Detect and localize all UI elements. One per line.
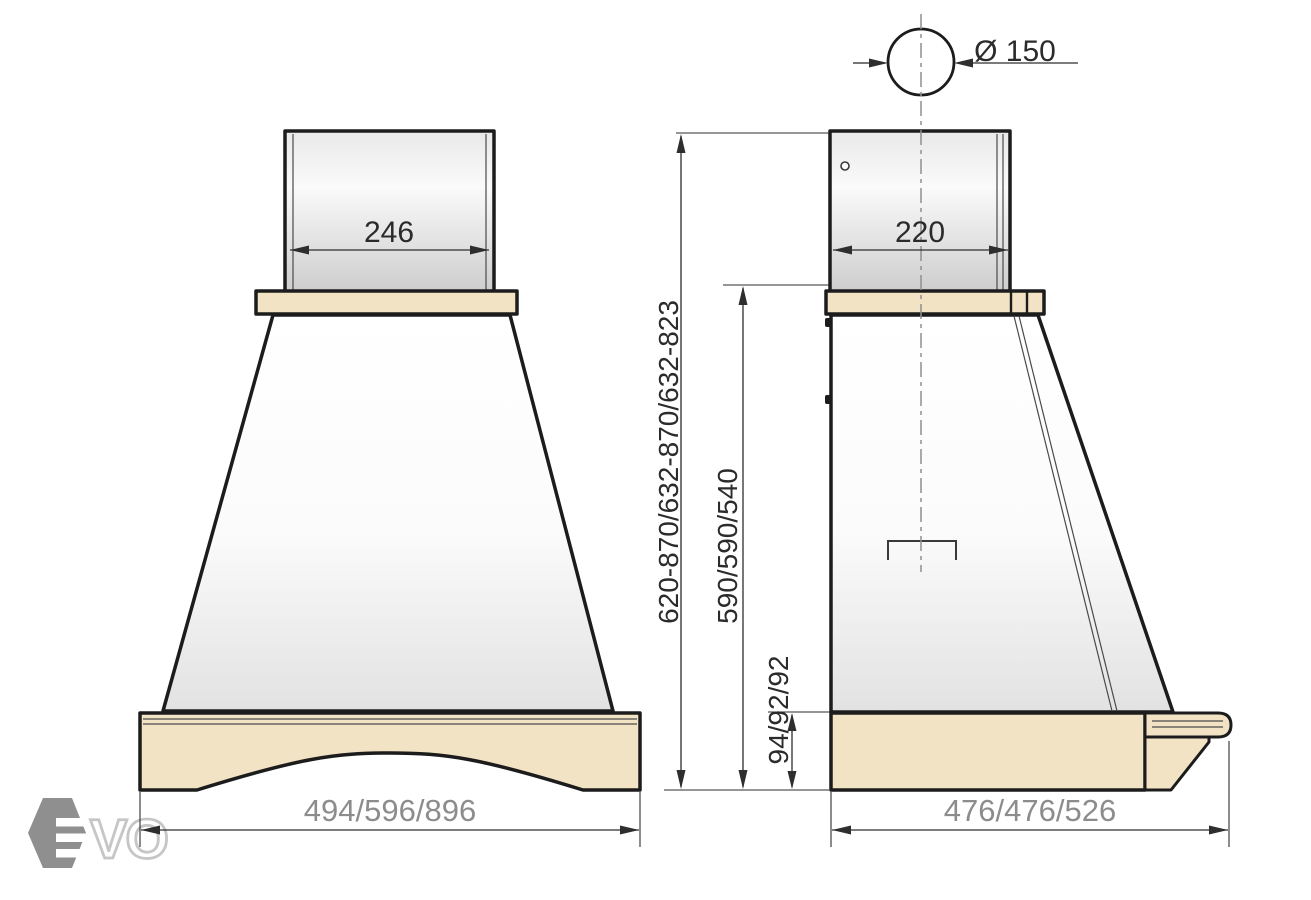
side-base-dim-arrow — [1209, 826, 1228, 835]
side-base-depth-label: 476/476/526 — [944, 793, 1116, 828]
front-base-dim-arrow — [620, 826, 639, 835]
duct-dim-arrow — [954, 59, 973, 68]
wall-mount-bump — [825, 318, 831, 327]
side-chimney — [830, 131, 1010, 292]
front-chimney-width-label: 246 — [364, 216, 414, 249]
side-base-band — [831, 713, 1145, 790]
side-base-front-block — [1145, 737, 1209, 790]
duct-dim-arrow — [869, 59, 888, 68]
overall-height-arrow — [677, 770, 686, 789]
front-base-width-label: 494/596/896 — [304, 793, 476, 828]
side-base-dim-arrow — [832, 826, 851, 835]
chimney-screw-hole — [841, 162, 849, 170]
duct-diameter-label: Ø 150 — [974, 35, 1056, 68]
logo-letters: VO — [90, 807, 167, 870]
logo-e-bar — [56, 818, 88, 827]
body-height-arrow — [739, 770, 748, 789]
overall-height-arrow — [677, 134, 686, 153]
front-canopy — [163, 315, 613, 711]
side-base-molding — [1145, 713, 1231, 737]
logo-e-bar — [56, 849, 88, 858]
logo-e-bar — [56, 834, 88, 843]
evo-logo: VO — [28, 798, 167, 870]
front-shelf — [256, 291, 517, 314]
side-body — [831, 315, 1173, 712]
overall-height-label: 620-870/632-870/632-823 — [653, 300, 684, 624]
body-height-label: 590/590/540 — [712, 468, 743, 624]
front-chimney — [285, 131, 494, 292]
side-view — [825, 131, 1231, 790]
hood-dimension-drawing: VO — [0, 0, 1311, 900]
wall-mount-bump — [825, 395, 831, 404]
body-height-arrow — [739, 286, 748, 305]
side-chimney-depth-label: 220 — [895, 216, 945, 249]
base-height-label: 94/92/92 — [763, 656, 794, 765]
base-height-arrow — [788, 771, 797, 789]
